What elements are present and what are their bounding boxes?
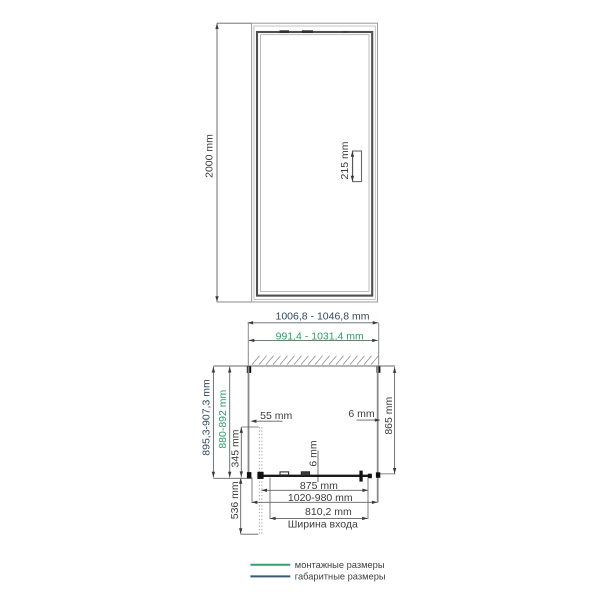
svg-text:895,3-907,3 mm: 895,3-907,3 mm bbox=[201, 379, 213, 456]
svg-text:Ширина входа: Ширина входа bbox=[288, 519, 358, 531]
svg-text:габаритные размеры: габаритные размеры bbox=[295, 572, 386, 582]
svg-text:2000 mm: 2000 mm bbox=[203, 134, 215, 178]
svg-text:215 mm: 215 mm bbox=[339, 141, 351, 179]
svg-text:810,2 mm: 810,2 mm bbox=[305, 506, 352, 518]
svg-text:880-892 mm: 880-892 mm bbox=[217, 389, 229, 448]
svg-text:6 mm: 6 mm bbox=[348, 408, 375, 420]
svg-text:монтажные размеры: монтажные размеры bbox=[295, 560, 385, 570]
svg-text:345 mm: 345 mm bbox=[230, 429, 242, 467]
svg-text:536 mm: 536 mm bbox=[229, 481, 241, 519]
svg-text:865 mm: 865 mm bbox=[383, 396, 395, 434]
svg-text:55 mm: 55 mm bbox=[260, 410, 292, 422]
svg-text:1006,8 - 1046,8 mm: 1006,8 - 1046,8 mm bbox=[276, 311, 370, 323]
